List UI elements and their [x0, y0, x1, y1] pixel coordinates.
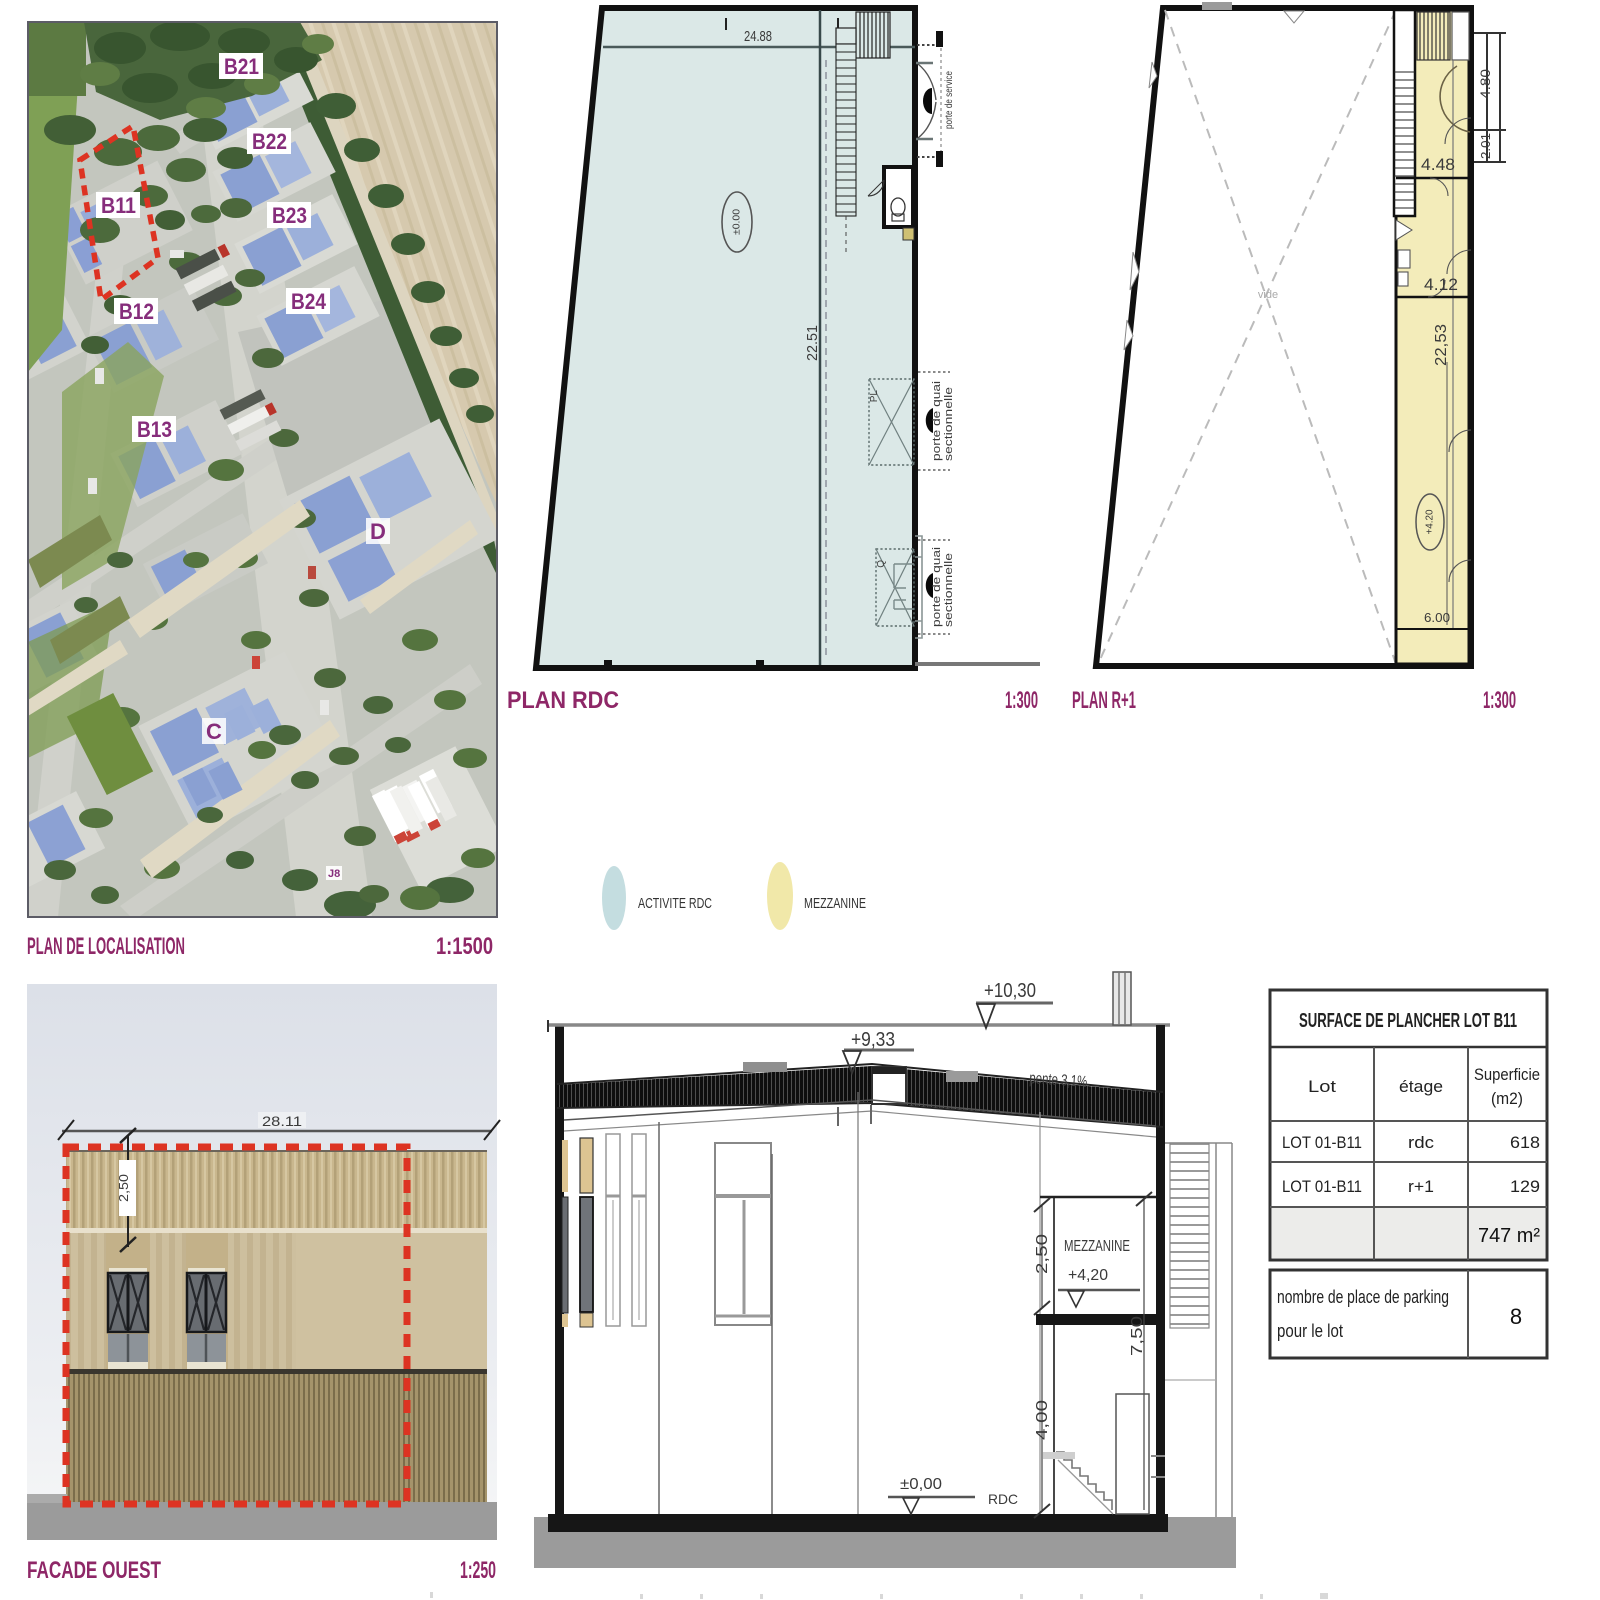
- svg-text:129: 129: [1510, 1177, 1540, 1196]
- svg-text:B13: B13: [137, 417, 172, 442]
- svg-text:ACTIVITE RDC: ACTIVITE RDC: [638, 895, 712, 912]
- svg-text:2.01: 2.01: [1478, 133, 1493, 159]
- svg-text:1:300: 1:300: [1005, 687, 1038, 714]
- svg-text:4.80: 4.80: [1477, 69, 1493, 99]
- svg-text:PL: PL: [869, 390, 880, 403]
- svg-text:6.00: 6.00: [1424, 610, 1450, 625]
- svg-text:(m2): (m2): [1491, 1089, 1523, 1108]
- svg-text:nombre de place de parking: nombre de place de parking: [1277, 1287, 1449, 1307]
- svg-text:MEZZANINE: MEZZANINE: [1064, 1238, 1130, 1255]
- svg-text:RDC: RDC: [988, 1491, 1018, 1507]
- svg-text:2,50: 2,50: [1034, 1234, 1051, 1274]
- svg-text:B21: B21: [224, 54, 259, 79]
- svg-text:rdc: rdc: [1408, 1133, 1435, 1152]
- svg-text:LOT 01-B11: LOT 01-B11: [1282, 1133, 1362, 1152]
- svg-text:+9,33: +9,33: [851, 1029, 895, 1051]
- svg-text:FACADE OUEST: FACADE OUEST: [27, 1557, 161, 1584]
- svg-text:+10,30: +10,30: [984, 980, 1036, 1002]
- svg-text:B12: B12: [119, 299, 154, 324]
- svg-text:C: C: [206, 719, 222, 744]
- svg-text:1:300: 1:300: [1483, 687, 1516, 714]
- svg-text:B24: B24: [291, 289, 327, 314]
- svg-text:vide: vide: [1258, 289, 1278, 301]
- svg-text:1:250: 1:250: [460, 1557, 496, 1584]
- svg-text:24.88: 24.88: [744, 28, 772, 45]
- svg-text:PLAN RDC: PLAN RDC: [507, 687, 619, 714]
- svg-text:sectionnelle: sectionnelle: [943, 387, 955, 461]
- svg-text:4.48: 4.48: [1421, 155, 1455, 174]
- svg-text:PLAN R+1: PLAN R+1: [1072, 687, 1136, 714]
- svg-text:22,53: 22,53: [1433, 324, 1450, 366]
- svg-text:618: 618: [1510, 1133, 1540, 1152]
- svg-text:747 m²: 747 m²: [1478, 1225, 1540, 1247]
- svg-text:pour le lot: pour le lot: [1277, 1321, 1343, 1341]
- svg-text:±0.00: ±0.00: [732, 209, 743, 235]
- svg-text:D: D: [370, 519, 386, 544]
- svg-text:+4.20: +4.20: [1425, 509, 1436, 534]
- svg-text:étage: étage: [1399, 1077, 1443, 1096]
- svg-text:J8: J8: [328, 868, 340, 880]
- svg-text:porte de quai: porte de quai: [931, 381, 943, 461]
- svg-text:Lot: Lot: [1308, 1077, 1336, 1096]
- svg-text:LOT 01-B11: LOT 01-B11: [1282, 1177, 1362, 1196]
- svg-text:MEZZANINE: MEZZANINE: [804, 895, 866, 912]
- svg-text:22.51: 22.51: [804, 325, 821, 361]
- svg-text:Superficie: Superficie: [1474, 1065, 1540, 1084]
- svg-text:+4,20: +4,20: [1068, 1267, 1108, 1284]
- svg-text:porte de service: porte de service: [944, 71, 955, 129]
- svg-text:4.12: 4.12: [1424, 275, 1458, 294]
- svg-text:±0,00: ±0,00: [900, 1476, 942, 1493]
- svg-text:porte de quai: porte de quai: [931, 547, 943, 627]
- svg-text:8: 8: [1510, 1304, 1522, 1329]
- svg-text:1:1500: 1:1500: [436, 933, 493, 960]
- svg-text:PLAN DE LOCALISATION: PLAN DE LOCALISATION: [27, 933, 185, 960]
- svg-text:28.11: 28.11: [262, 1113, 302, 1129]
- svg-text:r+1: r+1: [1408, 1177, 1434, 1196]
- svg-text:sectionnelle: sectionnelle: [943, 553, 955, 627]
- svg-text:4,00: 4,00: [1034, 1400, 1051, 1440]
- svg-text:B11: B11: [101, 193, 136, 218]
- svg-text:B23: B23: [272, 203, 307, 228]
- svg-text:Q: Q: [876, 560, 887, 568]
- svg-text:B22: B22: [252, 129, 287, 154]
- svg-text:SURFACE DE PLANCHER LOT B11: SURFACE DE PLANCHER LOT B11: [1299, 1010, 1517, 1032]
- svg-text:2,50: 2,50: [116, 1174, 131, 1202]
- svg-text:7,50: 7,50: [1129, 1316, 1146, 1356]
